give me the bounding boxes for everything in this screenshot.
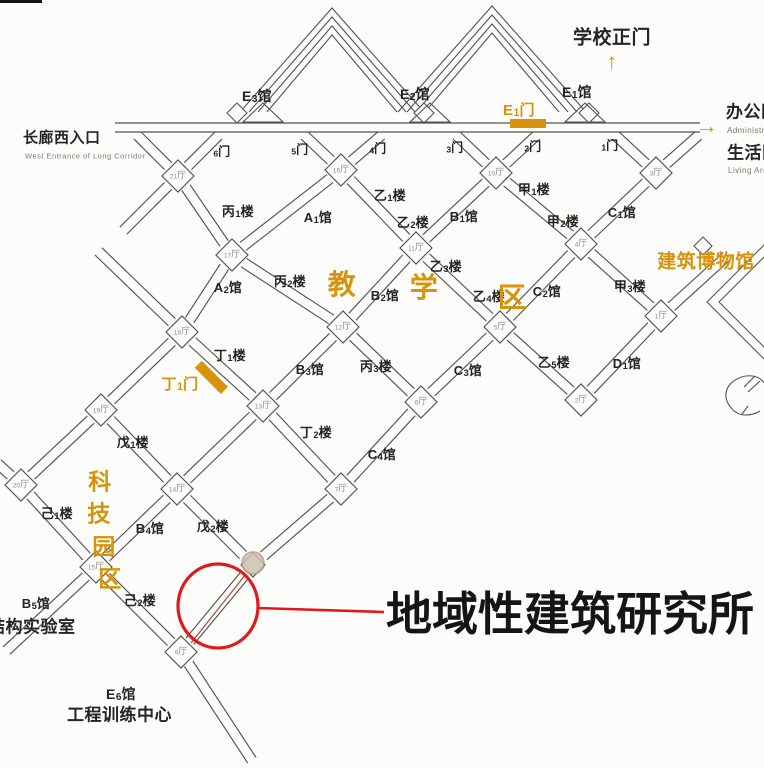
- annotation-callout-line: [257, 608, 384, 612]
- corridor-wing: [1, 460, 14, 472]
- corridor-wing: [0, 467, 7, 479]
- callout-text: 地域性建筑研究所: [386, 591, 754, 637]
- corridor-wing: [308, 132, 334, 157]
- corridor-wing: [190, 495, 246, 551]
- corridor-wing: [356, 262, 410, 320]
- corridor-wing: [510, 178, 574, 231]
- highlighted-corridor-line: [191, 574, 246, 643]
- corridor-wing: [186, 573, 240, 638]
- corridor-wing: [182, 190, 220, 246]
- corridor-wing: [503, 132, 533, 160]
- corridor-wing: [34, 492, 90, 553]
- hall-node: [640, 157, 672, 189]
- map-structure: [0, 0, 764, 768]
- e1-gate-bar: [510, 119, 546, 128]
- museum-building: [694, 212, 764, 392]
- long-corridor: [115, 123, 700, 132]
- corridor-wing: [675, 260, 730, 310]
- corridor-wing: [190, 185, 228, 241]
- corridor-wing: [595, 186, 650, 238]
- corridor-wing: [141, 132, 172, 163]
- corridor-wing: [506, 251, 567, 314]
- corridor-wing: [588, 179, 643, 231]
- scan-edge-artifact: [0, 0, 42, 3]
- corridor-wing: [301, 139, 327, 164]
- hall-node: [80, 551, 112, 583]
- corridor-wing: [435, 340, 494, 396]
- corridor-wing: [184, 666, 247, 763]
- corridor-wing: [428, 333, 487, 389]
- corridor-wing: [241, 267, 329, 324]
- corridor-lattice: [0, 132, 730, 764]
- corridor-wing: [191, 139, 222, 170]
- hall-node: [85, 394, 117, 426]
- corridor-wing: [453, 139, 482, 167]
- corridor-wing: [134, 139, 165, 170]
- hall-node: [565, 384, 597, 416]
- corridor-wing: [260, 494, 327, 552]
- hall-node: [565, 228, 597, 260]
- corridor-wing: [348, 132, 378, 158]
- corridor-wing: [269, 333, 329, 392]
- hall-node: [325, 473, 357, 505]
- corridor-wing: [587, 323, 648, 387]
- corridor-wing: [115, 345, 176, 404]
- corridor-wing: [423, 261, 487, 321]
- corridor-wing: [430, 186, 490, 242]
- corridor-wing: [95, 255, 168, 326]
- corridor-wing: [27, 499, 83, 560]
- corridor-wing: [183, 502, 239, 558]
- pond-shape: [726, 376, 764, 415]
- corridor-wing: [194, 579, 248, 644]
- corridor-wing: [35, 423, 95, 479]
- corridor-wing: [354, 416, 415, 482]
- hall-node: [166, 316, 198, 348]
- corridor-wing: [276, 413, 335, 476]
- hall-node: [645, 300, 677, 332]
- corridor-wing: [430, 254, 494, 314]
- corridor-wing: [663, 132, 695, 160]
- corridor-wing: [3, 573, 82, 647]
- highlight-annotation: [178, 564, 384, 648]
- hall-node: [5, 469, 37, 501]
- campus-map: E3馆E2馆E1馆学校正门↑E1门→办公区Administration Area…: [0, 0, 764, 768]
- corridor-wing: [127, 189, 172, 234]
- corridor-wing: [595, 250, 654, 303]
- corridor-wing: [120, 182, 165, 227]
- chevron-roofs: [240, 6, 586, 112]
- corridor-wing: [114, 417, 171, 476]
- corridor-wing: [510, 139, 540, 167]
- hall-node: [480, 157, 512, 189]
- corridor-wing: [513, 258, 574, 321]
- corridor-wing: [594, 330, 655, 394]
- corridor-wing: [350, 340, 408, 396]
- hall-node: [327, 311, 359, 343]
- corridor-wing: [670, 139, 702, 167]
- corridor-wing: [504, 186, 568, 239]
- corridor-wing: [191, 419, 257, 483]
- hall-node: [216, 239, 248, 271]
- hall-node: [161, 473, 193, 505]
- corridor-wing: [668, 253, 723, 303]
- corridor-wing: [109, 573, 174, 638]
- corridor-wing: [612, 139, 642, 167]
- corridor-wing: [588, 257, 647, 310]
- corridor-wing: [10, 580, 89, 654]
- corridor-wing: [240, 175, 327, 243]
- corridor-wing: [267, 502, 334, 560]
- landmark-marker: [242, 552, 264, 574]
- corridor-wing: [102, 580, 167, 645]
- hall-node: [484, 311, 516, 343]
- corridor-wing: [108, 338, 169, 397]
- corridor-wing: [349, 255, 403, 313]
- hall-node: [162, 160, 194, 192]
- corridor-wing: [103, 495, 164, 554]
- corridor-wing: [28, 416, 88, 472]
- corridor-wing: [619, 132, 649, 160]
- hall-node: [405, 386, 437, 418]
- hall-node: [325, 154, 357, 186]
- hall-node: [247, 390, 279, 422]
- corridor-wing: [347, 184, 403, 242]
- corridor-wing: [355, 139, 385, 165]
- corridor-wing: [246, 183, 333, 251]
- corridor-wing: [246, 258, 334, 315]
- corridor-wing: [269, 420, 328, 483]
- corridor-wing: [514, 333, 574, 387]
- corridor-wing: [423, 179, 483, 235]
- corridor-wing: [184, 412, 250, 476]
- corridor-wing: [357, 333, 415, 389]
- corridor-wing: [107, 424, 164, 483]
- corridor-wing: [193, 661, 256, 758]
- corridor-wing: [184, 132, 215, 163]
- corridor-wing: [354, 177, 410, 235]
- corridor-wing: [460, 132, 489, 160]
- corridor-wing: [276, 340, 336, 399]
- corridor-wing: [507, 340, 567, 394]
- annotation-circle: [178, 564, 258, 648]
- corridor-wing: [110, 502, 171, 561]
- hall-node: [400, 232, 432, 264]
- corridor-wing: [347, 409, 408, 475]
- corridor-wing: [102, 248, 175, 319]
